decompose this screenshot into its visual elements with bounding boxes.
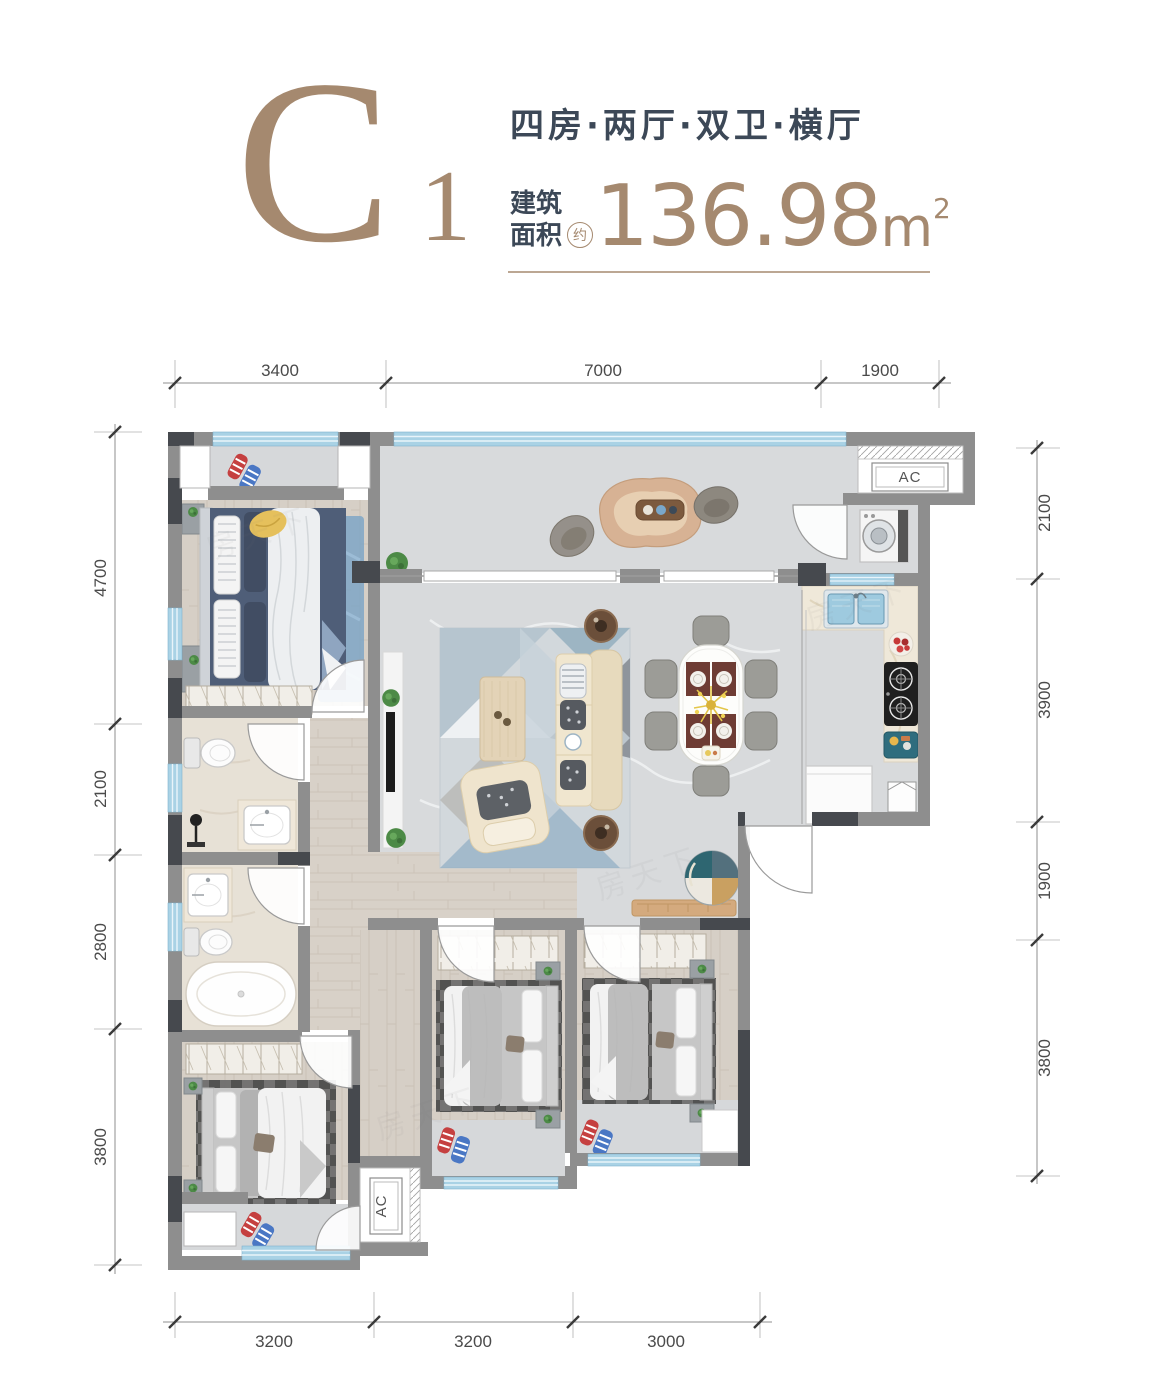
dim-label: 3800 — [91, 1128, 110, 1166]
dim-label: 3200 — [255, 1332, 293, 1351]
dining-chair — [745, 660, 777, 698]
window — [213, 432, 338, 446]
dining-chair — [693, 766, 729, 796]
breakfast-tray — [884, 732, 918, 758]
wardrobe — [186, 1044, 302, 1074]
floorplan-page: C 1 四房·两厅·双卫·横厅 建筑 面积 约 136.98 m2 — [0, 0, 1154, 1400]
dim-label: 1900 — [861, 361, 899, 380]
toilet — [184, 738, 235, 768]
dining-chair — [693, 616, 729, 646]
ac-niche — [702, 1110, 738, 1152]
bath-sink — [184, 868, 232, 922]
window — [168, 903, 182, 951]
floorplan-svg: AC AC — [0, 0, 1154, 1400]
hallway-floor — [310, 718, 368, 1030]
plant-icon — [382, 689, 400, 707]
dim-label: 3800 — [1035, 1039, 1054, 1077]
window — [394, 432, 846, 446]
hatch-band — [858, 446, 963, 459]
coffee-table — [480, 677, 525, 761]
utility-box-icon — [888, 782, 916, 812]
window — [168, 764, 182, 812]
dim-label: 2100 — [1035, 494, 1054, 532]
dim-chain-right: 2100 3900 1900 3800 — [1016, 440, 1060, 1184]
ac-label: AC — [373, 1195, 390, 1218]
window — [588, 1154, 700, 1166]
dining-chair — [645, 712, 677, 750]
dim-label: 3900 — [1035, 681, 1054, 719]
side-table-top — [585, 610, 617, 642]
dim-label: 7000 — [584, 361, 622, 380]
tv — [386, 712, 395, 792]
plant-icon — [386, 828, 406, 848]
window — [444, 1177, 558, 1189]
armchair — [458, 759, 551, 856]
dining-chair — [745, 712, 777, 750]
sofa — [556, 650, 622, 810]
ac-platform-bottom: AC — [360, 1168, 420, 1242]
glazing-pier — [180, 446, 210, 488]
bathtub — [186, 962, 296, 1026]
bath-sink — [238, 800, 296, 850]
dim-label: 3200 — [454, 1332, 492, 1351]
fruit-plate — [889, 632, 913, 656]
dim-label: 3000 — [647, 1332, 685, 1351]
glazing-pier — [184, 1212, 236, 1246]
bed — [202, 1088, 326, 1198]
washing-machine — [860, 510, 908, 562]
dim-label: 2800 — [91, 923, 110, 961]
hatch-band — [410, 1168, 420, 1242]
dim-label: 2100 — [91, 770, 110, 808]
glazing-pier — [338, 446, 370, 488]
toilet — [184, 928, 232, 956]
side-table-bottom — [584, 816, 618, 850]
dim-label: 4700 — [91, 559, 110, 597]
ac-label: AC — [899, 469, 922, 486]
ac-platform-topright: AC — [858, 446, 963, 493]
dim-label: 1900 — [1035, 862, 1054, 900]
dim-chain-bottom: 3200 3200 3000 — [163, 1292, 772, 1351]
dining-chair — [645, 660, 677, 698]
dim-label: 3400 — [261, 361, 299, 380]
sliding-door-panel — [664, 571, 774, 581]
dim-chain-top: 3400 7000 1900 — [163, 360, 951, 408]
window — [168, 608, 182, 660]
dim-chain-left: 4700 2100 2800 3800 — [91, 424, 142, 1274]
gas-stove — [884, 662, 918, 726]
sliding-door-panel — [424, 571, 616, 581]
entry-door — [745, 826, 812, 893]
